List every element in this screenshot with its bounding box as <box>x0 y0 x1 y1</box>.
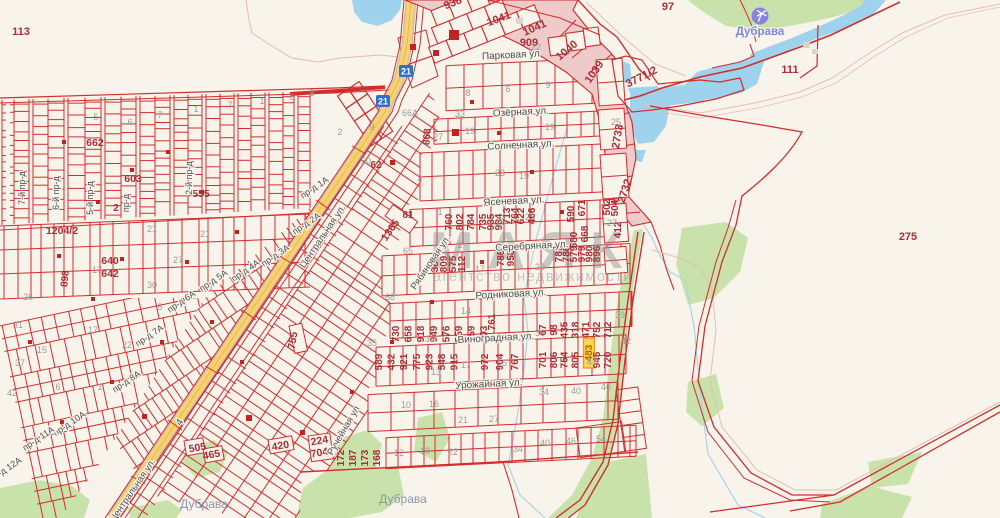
svg-text:30: 30 <box>147 280 157 290</box>
svg-text:31: 31 <box>13 320 23 330</box>
svg-text:10: 10 <box>401 400 411 410</box>
svg-text:590: 590 <box>566 205 577 222</box>
svg-text:5-й пр-д: 5-й пр-д <box>85 180 95 214</box>
svg-text:17: 17 <box>88 325 98 335</box>
svg-text:33: 33 <box>455 109 465 119</box>
svg-text:555: 555 <box>192 188 210 200</box>
svg-text:168: 168 <box>372 449 383 466</box>
svg-text:784: 784 <box>466 213 477 230</box>
svg-text:19: 19 <box>519 171 529 181</box>
svg-text:27: 27 <box>489 414 499 424</box>
svg-text:972: 972 <box>480 353 491 370</box>
svg-text:66А: 66А <box>402 108 418 118</box>
svg-text:589: 589 <box>374 353 385 370</box>
svg-text:1204/2: 1204/2 <box>46 225 78 237</box>
svg-text:34: 34 <box>513 444 523 454</box>
svg-text:187: 187 <box>348 449 359 466</box>
svg-text:Дубрава: Дубрава <box>379 492 427 506</box>
svg-text:20: 20 <box>535 262 545 272</box>
svg-text:754: 754 <box>560 351 571 368</box>
svg-text:603: 603 <box>124 173 142 185</box>
svg-text:19: 19 <box>545 122 555 132</box>
svg-text:27: 27 <box>173 255 183 265</box>
svg-text:46: 46 <box>601 382 611 392</box>
svg-text:915: 915 <box>450 353 461 370</box>
svg-text:пр-д: пр-д <box>121 193 131 212</box>
svg-text:6: 6 <box>505 84 510 94</box>
svg-text:432: 432 <box>387 353 398 370</box>
svg-text:712: 712 <box>603 321 614 338</box>
svg-text:1: 1 <box>97 382 102 392</box>
svg-text:6: 6 <box>127 117 132 127</box>
svg-text:25: 25 <box>611 117 621 127</box>
svg-text:896: 896 <box>592 245 603 262</box>
svg-text:767: 767 <box>510 353 521 370</box>
svg-text:921: 921 <box>399 353 410 370</box>
svg-text:1: 1 <box>193 104 198 114</box>
svg-text:576: 576 <box>441 325 452 342</box>
svg-text:2: 2 <box>113 203 119 214</box>
svg-text:113: 113 <box>12 26 30 38</box>
svg-text:26: 26 <box>23 292 33 302</box>
svg-text:173: 173 <box>360 449 371 466</box>
svg-text:25: 25 <box>525 212 535 222</box>
svg-text:9: 9 <box>369 122 374 132</box>
svg-text:471: 471 <box>581 321 592 338</box>
svg-text:97: 97 <box>662 1 674 13</box>
svg-text:22: 22 <box>122 340 132 350</box>
svg-text:41: 41 <box>587 357 597 367</box>
svg-text:806: 806 <box>549 351 560 368</box>
svg-text:21: 21 <box>378 97 388 107</box>
svg-text:868: 868 <box>421 128 433 146</box>
svg-text:7: 7 <box>227 100 232 110</box>
svg-text:19: 19 <box>465 126 475 136</box>
svg-text:35: 35 <box>367 338 377 348</box>
svg-text:13: 13 <box>431 367 441 377</box>
svg-text:642: 642 <box>101 268 119 280</box>
svg-text:7: 7 <box>157 110 162 120</box>
svg-text:671: 671 <box>577 199 588 216</box>
svg-text:40: 40 <box>571 386 581 396</box>
svg-text:668: 668 <box>580 225 591 242</box>
svg-text:23: 23 <box>495 168 505 178</box>
svg-text:701: 701 <box>538 351 549 368</box>
svg-text:658: 658 <box>404 325 415 342</box>
svg-text:65: 65 <box>403 246 413 256</box>
svg-text:435: 435 <box>560 321 571 338</box>
svg-text:21: 21 <box>458 415 468 425</box>
svg-text:36: 36 <box>535 328 545 338</box>
svg-text:720: 720 <box>603 351 614 368</box>
svg-text:2: 2 <box>457 240 462 250</box>
svg-text:2: 2 <box>337 127 342 137</box>
svg-text:775: 775 <box>412 353 423 370</box>
svg-text:27: 27 <box>607 218 617 228</box>
svg-text:21: 21 <box>401 67 411 77</box>
svg-text:15: 15 <box>497 358 507 368</box>
svg-text:275: 275 <box>899 231 917 243</box>
svg-text:Дубрава: Дубрава <box>736 26 785 38</box>
svg-text:21: 21 <box>200 229 210 239</box>
svg-text:81: 81 <box>402 210 414 221</box>
svg-text:5: 5 <box>93 112 98 122</box>
svg-text:6-й пр-д: 6-й пр-д <box>51 175 61 209</box>
svg-text:40: 40 <box>540 438 550 448</box>
svg-text:17: 17 <box>461 360 471 370</box>
svg-text:27: 27 <box>433 132 443 142</box>
svg-text:502: 502 <box>602 198 613 215</box>
svg-text:112: 112 <box>457 255 468 272</box>
svg-text:898: 898 <box>59 270 71 288</box>
svg-text:68: 68 <box>385 292 395 302</box>
svg-text:33: 33 <box>425 334 435 344</box>
svg-text:5: 5 <box>157 302 162 312</box>
svg-text:54: 54 <box>596 434 606 444</box>
svg-text:752: 752 <box>592 321 603 338</box>
svg-text:111: 111 <box>781 64 798 76</box>
svg-text:761: 761 <box>487 313 498 330</box>
svg-text:802: 802 <box>455 213 466 230</box>
svg-text:662: 662 <box>86 137 104 149</box>
svg-text:17: 17 <box>475 264 485 274</box>
svg-text:15: 15 <box>495 217 505 227</box>
svg-text:42: 42 <box>7 388 17 398</box>
svg-text:7-й пр-д: 7-й пр-д <box>17 170 27 204</box>
svg-text:39: 39 <box>615 310 625 320</box>
svg-text:1: 1 <box>437 207 442 217</box>
svg-text:17: 17 <box>92 265 102 275</box>
svg-text:9: 9 <box>545 80 550 90</box>
svg-text:2-й пр-д: 2-й пр-д <box>184 160 194 194</box>
svg-text:16: 16 <box>429 399 439 409</box>
svg-text:46: 46 <box>566 436 576 446</box>
svg-text:62: 62 <box>370 160 382 171</box>
svg-text:98: 98 <box>549 324 560 336</box>
svg-text:640: 640 <box>101 255 119 267</box>
svg-text:730: 730 <box>391 325 402 342</box>
svg-text:14: 14 <box>461 306 471 316</box>
svg-text:21: 21 <box>147 224 157 234</box>
svg-text:22: 22 <box>448 447 458 457</box>
svg-text:4: 4 <box>417 174 422 184</box>
svg-text:50: 50 <box>361 156 371 166</box>
svg-text:318: 318 <box>570 321 581 338</box>
svg-text:42: 42 <box>621 336 631 346</box>
svg-text:15: 15 <box>37 345 47 355</box>
svg-text:1: 1 <box>259 96 264 106</box>
svg-text:34: 34 <box>539 387 549 397</box>
svg-text:Дубрава: Дубрава <box>180 497 228 511</box>
svg-text:6: 6 <box>289 92 294 102</box>
svg-text:18: 18 <box>420 446 430 456</box>
svg-text:6: 6 <box>55 382 60 392</box>
svg-text:760: 760 <box>444 213 455 230</box>
svg-text:8: 8 <box>309 88 314 98</box>
svg-text:805: 805 <box>570 351 581 368</box>
svg-text:12: 12 <box>394 448 404 458</box>
svg-text:8: 8 <box>465 88 470 98</box>
svg-text:37: 37 <box>15 358 25 368</box>
